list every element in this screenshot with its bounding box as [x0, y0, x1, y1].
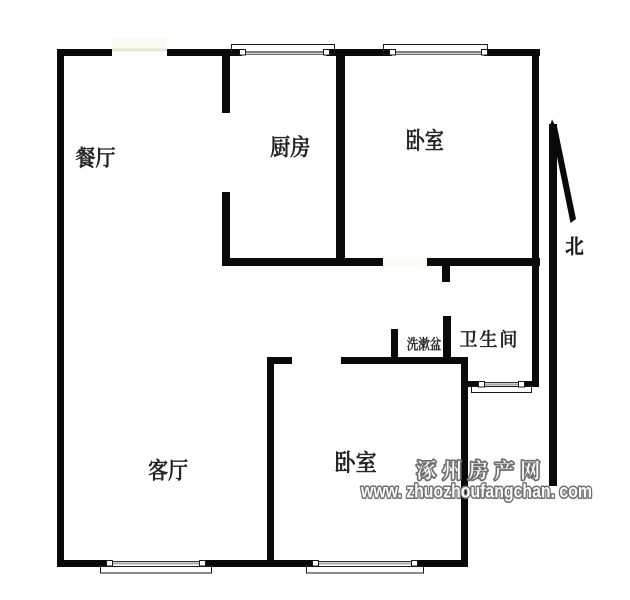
svg-text:www. zhuozhoufangchan. com: www. zhuozhoufangchan. com	[360, 482, 592, 503]
